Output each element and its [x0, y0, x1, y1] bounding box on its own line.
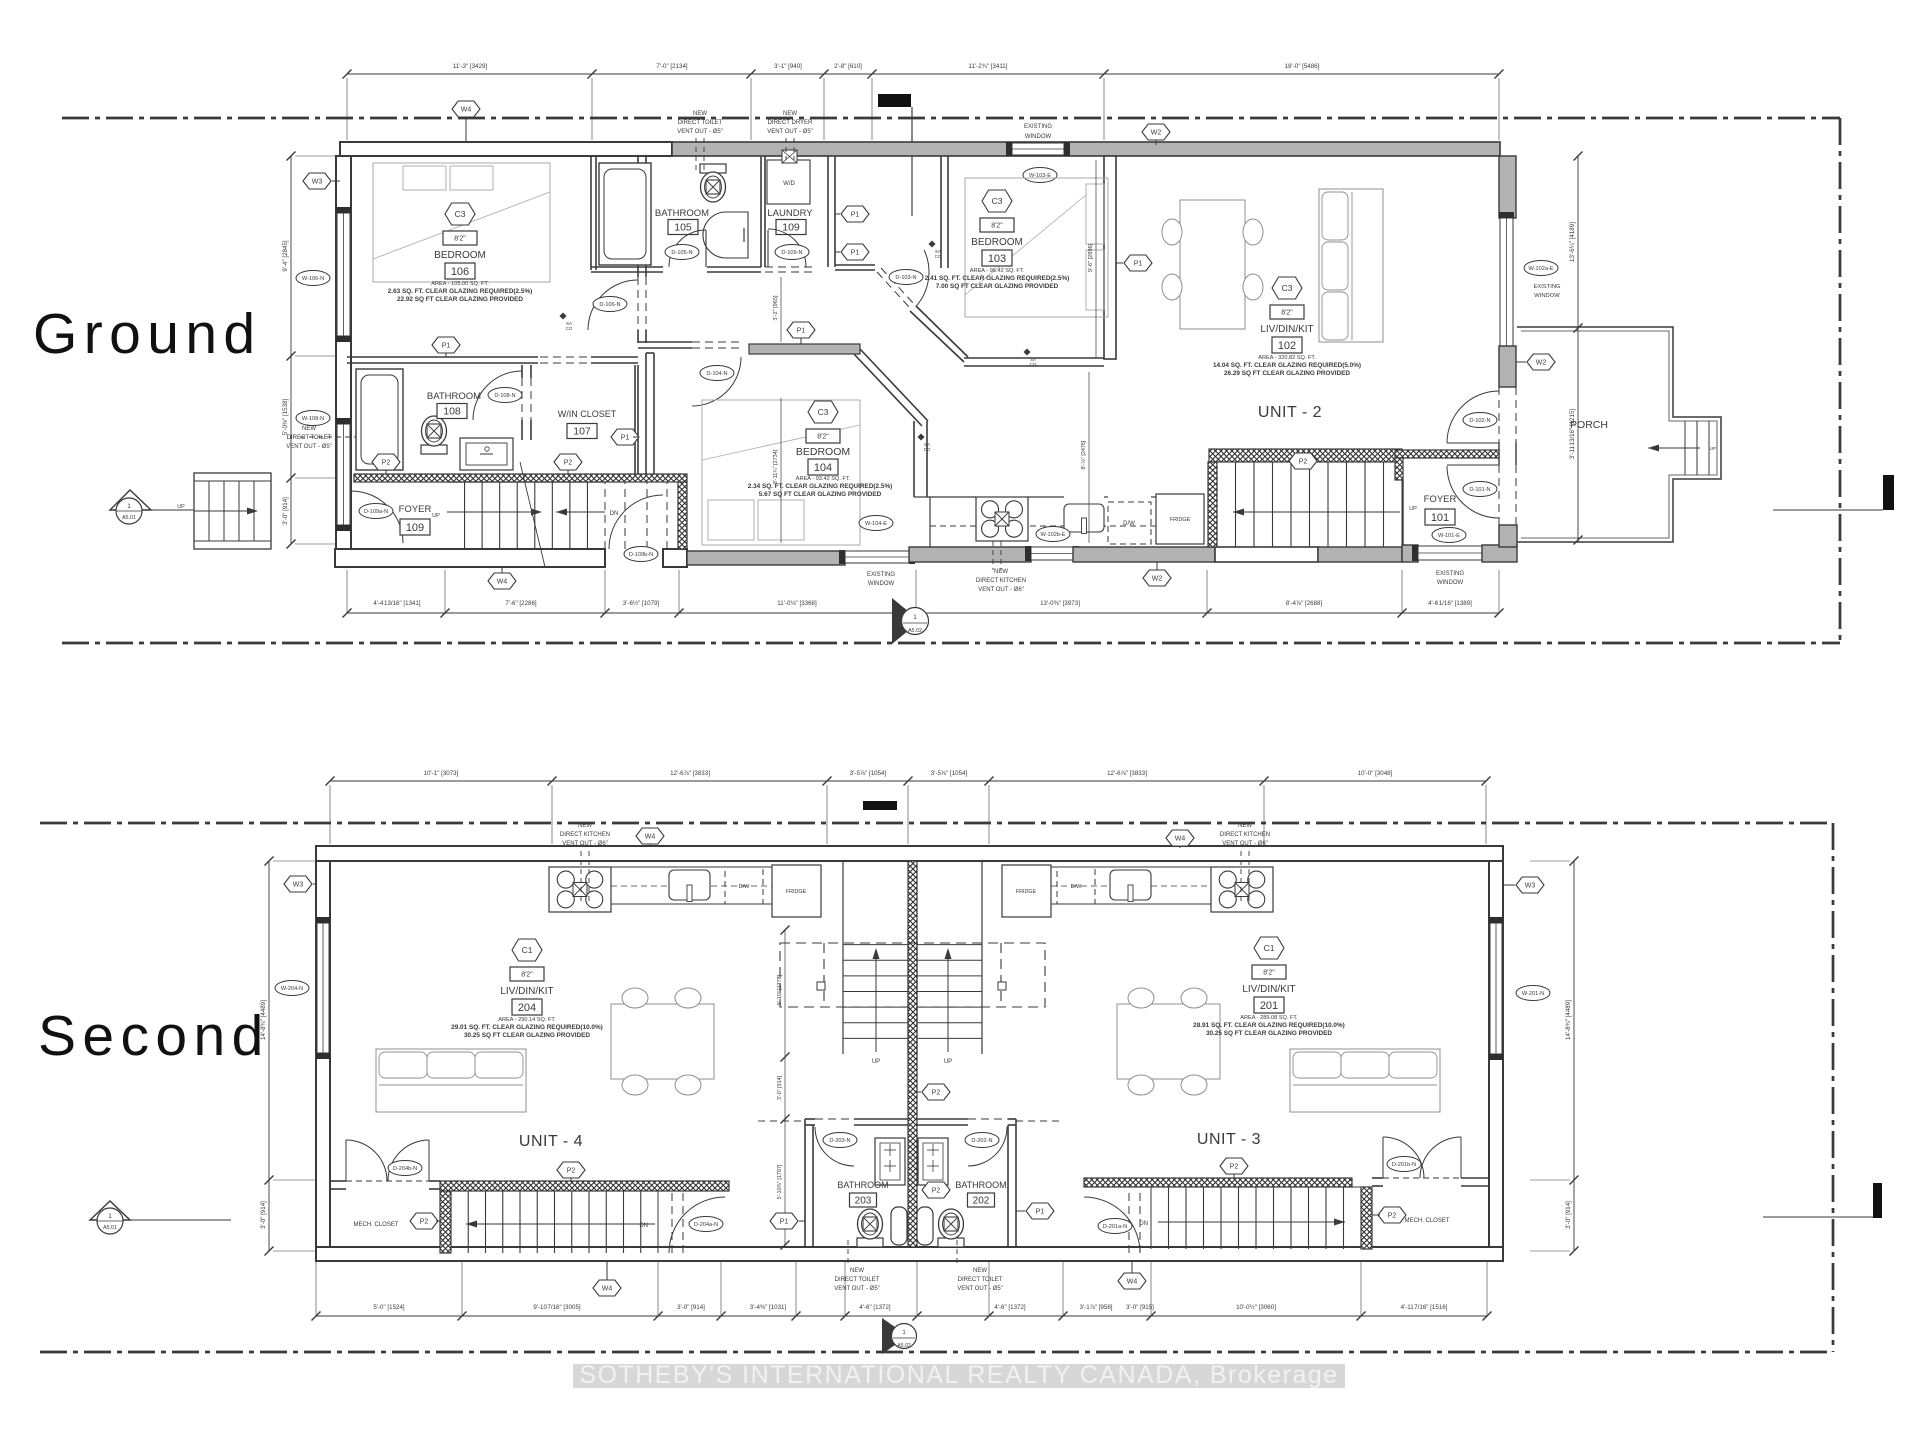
svg-text:BEDROOM: BEDROOM: [434, 250, 486, 261]
svg-text:W4: W4: [645, 834, 656, 841]
svg-text:7'-6" [2286]: 7'-6" [2286]: [505, 600, 537, 607]
svg-text:106: 106: [451, 266, 469, 278]
svg-text:P2: P2: [1388, 1213, 1397, 1220]
svg-text:BATHROOM: BATHROOM: [655, 208, 709, 219]
svg-text:8'2": 8'2": [1281, 309, 1293, 316]
svg-text:W4: W4: [461, 107, 472, 114]
svg-text:FRIDGE: FRIDGE: [786, 889, 807, 895]
svg-text:C3: C3: [1282, 283, 1293, 293]
svg-text:DIRECT TOILET: DIRECT TOILET: [835, 1277, 880, 1283]
svg-text:5.67 SQ FT CLEAR GLAZING: 5.67 SQ FT CLEAR GLAZING PROVIDED: [759, 491, 882, 498]
svg-text:202: 202: [973, 1196, 990, 1207]
svg-text:FOYER: FOYER: [1424, 494, 1457, 505]
svg-text:9'-4" [2845]: 9'-4" [2845]: [282, 240, 289, 272]
svg-text:UNIT - 3: UNIT - 3: [1197, 1131, 1261, 1148]
svg-text:W4: W4: [1127, 1279, 1138, 1286]
svg-text:FRIDGE: FRIDGE: [1170, 517, 1191, 523]
svg-text:11'-0⅛" [3368]: 11'-0⅛" [3368]: [777, 600, 817, 607]
svg-text:A5.02: A5.02: [908, 628, 922, 634]
svg-text:VENT OUT - Ø6": VENT OUT - Ø6": [562, 841, 608, 847]
svg-text:NEW: NEW: [850, 1268, 864, 1274]
svg-text:8'2": 8'2": [521, 971, 533, 978]
svg-text:BEDROOM: BEDROOM: [796, 446, 850, 458]
svg-text:3'-0" [914]: 3'-0" [914]: [677, 1304, 705, 1311]
svg-text:4'-4 13/16" [1341]: 4'-4 13/16" [1341]: [373, 600, 421, 607]
svg-text:18'-0" [5486]: 18'-0" [5486]: [1285, 63, 1320, 70]
svg-text:D/W: D/W: [739, 884, 751, 890]
svg-text:VENT OUT - Ø5": VENT OUT - Ø5": [957, 1286, 1003, 1292]
svg-text:D-202-N: D-202-N: [971, 1138, 992, 1144]
svg-text:EXISTING: EXISTING: [1533, 284, 1561, 290]
svg-text:D-204b-N: D-204b-N: [393, 1166, 417, 1172]
svg-text:2.63 SQ. FT. CLEAR GLAZING: 2.63 SQ. FT. CLEAR GLAZING REQUIRED(2.5%…: [388, 288, 533, 295]
svg-text:3'-0" [915]: 3'-0" [915]: [1126, 1304, 1154, 1311]
svg-text:D-204a-N: D-204a-N: [694, 1222, 718, 1228]
svg-text:DIRECT TOILET: DIRECT TOILET: [287, 435, 332, 441]
svg-text:D/W: D/W: [1071, 884, 1083, 890]
svg-text:DIRECT KITCHEN: DIRECT KITCHEN: [976, 578, 1026, 584]
svg-text:W/IN CLOSET: W/IN CLOSET: [558, 409, 617, 419]
svg-text:W4: W4: [602, 1286, 613, 1293]
svg-text:P2: P2: [1299, 459, 1308, 466]
svg-text:AREA - 105.00 SQ. FT.: AREA - 105.00 SQ. FT.: [431, 281, 489, 287]
svg-text:109: 109: [406, 522, 424, 534]
svg-text:3'-0" [914]: 3'-0" [914]: [777, 1075, 783, 1100]
svg-text:LAUNDRY: LAUNDRY: [767, 208, 813, 219]
svg-text:8'2": 8'2": [991, 222, 1003, 229]
svg-text:3'-6½" [1079]: 3'-6½" [1079]: [623, 600, 660, 607]
svg-text:3'-5⅞" [1054]: 3'-5⅞" [1054]: [931, 770, 968, 777]
svg-text:NEW: NEW: [783, 111, 797, 117]
svg-text:DN: DN: [1139, 1221, 1148, 1227]
svg-text:C3: C3: [992, 196, 1003, 206]
svg-text:8'-4⅞" [2688]: 8'-4⅞" [2688]: [1286, 600, 1323, 607]
svg-text:EXISTING: EXISTING: [867, 572, 895, 578]
svg-text:203: 203: [855, 1196, 872, 1207]
svg-text:D-203-N: D-203-N: [829, 1138, 850, 1144]
svg-text:VENT OUT - Ø5": VENT OUT - Ø5": [834, 1286, 880, 1292]
svg-text:22.92 SQ FT CLEAR GLAZING: 22.92 SQ FT CLEAR GLAZING PROVIDED: [397, 296, 523, 303]
svg-text:LIV/DIN/KIT: LIV/DIN/KIT: [1242, 984, 1295, 995]
svg-text:10'-0" [3048]: 10'-0" [3048]: [1358, 770, 1393, 777]
svg-text:P2: P2: [564, 460, 573, 467]
svg-text:UP: UP: [1409, 506, 1417, 512]
svg-text:DIRECT KITCHEN: DIRECT KITCHEN: [1220, 832, 1270, 838]
svg-text:4'-6" [1372]: 4'-6" [1372]: [994, 1304, 1026, 1311]
svg-text:8'2": 8'2": [1263, 969, 1275, 976]
svg-text:14'-8¾" [4489]: 14'-8¾" [4489]: [260, 1000, 267, 1040]
svg-text:BATHROOM: BATHROOM: [427, 391, 481, 402]
svg-text:W-102b-E: W-102b-E: [1040, 532, 1065, 538]
svg-text:28.91 SQ. FT. CLEAR GLAZIN: 28.91 SQ. FT. CLEAR GLAZING REQUIRED(10.…: [1193, 1022, 1345, 1029]
svg-text:UP: UP: [1710, 446, 1716, 451]
svg-text:Ground: Ground: [33, 302, 262, 366]
svg-text:30.25 SQ FT CLEAR GLAZING: 30.25 SQ FT CLEAR GLAZING PROVIDED: [1206, 1030, 1332, 1037]
svg-text:NEW: NEW: [302, 426, 316, 432]
svg-text:FOYER: FOYER: [399, 504, 432, 515]
svg-text:P2: P2: [567, 1168, 576, 1175]
svg-text:DIRECT TOILET: DIRECT TOILET: [958, 1277, 1003, 1283]
svg-text:3'-11 13/16" [1215]: 3'-11 13/16" [1215]: [1569, 409, 1576, 460]
svg-text:7'-0" [2134]: 7'-0" [2134]: [656, 63, 688, 70]
svg-text:14'-8¾" [4489]: 14'-8¾" [4489]: [1565, 1000, 1572, 1040]
svg-text:7.00 SQ FT CLEAR GLAZING: 7.00 SQ FT CLEAR GLAZING PROVIDED: [936, 283, 1059, 290]
svg-text:NEW: NEW: [578, 823, 592, 829]
svg-text:WINDOW: WINDOW: [1534, 293, 1560, 299]
svg-text:1: 1: [127, 503, 131, 510]
svg-text:MECH. CLOSET: MECH. CLOSET: [1404, 1218, 1449, 1224]
svg-text:BATHROOM: BATHROOM: [837, 1180, 888, 1190]
svg-text:VENT OUT - Ø6": VENT OUT - Ø6": [978, 587, 1024, 593]
svg-text:5'-0⅜" [1538]: 5'-0⅜" [1538]: [282, 399, 289, 436]
svg-text:13'-6¼" [4189]: 13'-6¼" [4189]: [1569, 222, 1576, 262]
svg-text:UP: UP: [432, 513, 440, 519]
svg-text:9'-6" [2896]: 9'-6" [2896]: [1088, 243, 1094, 272]
svg-text:LIV/DIN/KIT: LIV/DIN/KIT: [500, 986, 553, 997]
svg-text:D-101-N: D-101-N: [1469, 487, 1490, 493]
svg-text:3'-1⅞" [958]: 3'-1⅞" [958]: [1080, 1304, 1113, 1311]
svg-text:11'-3" [3429]: 11'-3" [3429]: [453, 63, 488, 70]
svg-text:P2: P2: [382, 460, 391, 467]
svg-text:W-204-N: W-204-N: [281, 986, 303, 992]
svg-text:W-108-N: W-108-N: [302, 416, 324, 422]
svg-text:5'-10⅜" [1797]: 5'-10⅜" [1797]: [777, 1164, 783, 1199]
svg-text:D-103-N: D-103-N: [895, 275, 916, 281]
svg-text:109: 109: [782, 222, 800, 234]
svg-text:D-102-N: D-102-N: [1469, 418, 1490, 424]
svg-text:WINDOW: WINDOW: [1025, 134, 1052, 140]
svg-text:VENT OUT - Ø6": VENT OUT - Ø6": [1222, 841, 1268, 847]
svg-text:8'2": 8'2": [454, 235, 466, 242]
svg-text:W-106-N: W-106-N: [302, 276, 324, 282]
svg-text:BEDROOM: BEDROOM: [971, 237, 1023, 248]
svg-text:104: 104: [814, 462, 832, 474]
svg-text:A5.01: A5.01: [122, 515, 136, 521]
svg-text:NEW: NEW: [693, 111, 707, 117]
svg-text:W/D: W/D: [783, 181, 795, 187]
svg-text:4'-6" [1372]: 4'-6" [1372]: [859, 1304, 891, 1311]
svg-text:UNIT - 4: UNIT - 4: [519, 1133, 583, 1150]
svg-text:PORCH: PORCH: [1570, 419, 1608, 431]
svg-text:P1: P1: [780, 1219, 789, 1226]
svg-text:W3: W3: [293, 882, 304, 889]
svg-text:VENT OUT - Ø5": VENT OUT - Ø5": [677, 129, 723, 135]
svg-text:P1: P1: [797, 328, 806, 335]
svg-text:DN: DN: [610, 511, 619, 517]
svg-text:P1: P1: [851, 250, 860, 257]
svg-text:LIV/DIN/KIT: LIV/DIN/KIT: [1260, 324, 1313, 335]
svg-text:P2: P2: [932, 1188, 941, 1195]
svg-text:UP: UP: [177, 504, 185, 510]
svg-text:UP: UP: [872, 1059, 880, 1065]
svg-text:D-201b-N: D-201b-N: [1392, 1162, 1416, 1168]
svg-text:CO: CO: [935, 254, 942, 259]
svg-text:C1: C1: [1264, 943, 1275, 953]
svg-text:3'-0" [914]: 3'-0" [914]: [260, 1201, 267, 1229]
svg-text:2.34 SQ. FT. CLEAR GLAZING: 2.34 SQ. FT. CLEAR GLAZING REQUIRED(2.5%…: [748, 483, 893, 490]
svg-text:AREA - 96.42 SQ. FT.: AREA - 96.42 SQ. FT.: [970, 268, 1025, 274]
svg-text:W2: W2: [1152, 576, 1163, 583]
svg-text:102: 102: [1278, 340, 1296, 352]
svg-text:P1: P1: [1036, 1209, 1045, 1216]
svg-text:8'-½" [2476]: 8'-½" [2476]: [1080, 440, 1087, 469]
svg-text:3'-0" [914]: 3'-0" [914]: [282, 497, 289, 525]
svg-text:W3: W3: [312, 179, 323, 186]
svg-text:W-104-E: W-104-E: [865, 521, 887, 527]
svg-text:FRIDGE: FRIDGE: [1016, 889, 1037, 895]
svg-text:NEW: NEW: [973, 1268, 987, 1274]
svg-text:10'-1" [3073]: 10'-1" [3073]: [424, 770, 459, 777]
svg-text:CO: CO: [924, 447, 931, 452]
svg-text:D-106-N: D-106-N: [599, 302, 620, 308]
svg-text:VENT OUT - Ø5": VENT OUT - Ø5": [286, 444, 332, 450]
svg-text:WINDOW: WINDOW: [1437, 580, 1464, 586]
svg-text:10'-0½" [3060]: 10'-0½" [3060]: [1236, 1304, 1276, 1311]
svg-text:DIRECT DRYER: DIRECT DRYER: [768, 120, 813, 126]
svg-text:NEW: NEW: [1238, 823, 1252, 829]
svg-text:14.04 SQ. FT. CLEAR GLAZIN: 14.04 SQ. FT. CLEAR GLAZING REQUIRED(5.0…: [1213, 362, 1361, 369]
svg-text:W2: W2: [1536, 360, 1547, 367]
svg-text:11'-2¾" [3411]: 11'-2¾" [3411]: [969, 63, 1008, 70]
svg-text:12'-6⅞" [3833]: 12'-6⅞" [3833]: [1107, 770, 1147, 777]
svg-text:W4: W4: [1175, 836, 1186, 843]
svg-text:BATHROOM: BATHROOM: [955, 1180, 1006, 1190]
svg-text:P2: P2: [420, 1219, 429, 1226]
svg-text:101: 101: [1431, 512, 1449, 524]
svg-text:DN: DN: [639, 1223, 648, 1229]
svg-text:P1: P1: [621, 435, 630, 442]
svg-text:4'-6 1/16" [1389]: 4'-6 1/16" [1389]: [1428, 600, 1472, 607]
svg-text:8'2": 8'2": [817, 433, 829, 440]
svg-text:D-109-N: D-109-N: [781, 250, 802, 256]
svg-text:3'-4⅜" [1031]: 3'-4⅜" [1031]: [750, 1304, 787, 1311]
svg-text:WINDOW: WINDOW: [868, 581, 895, 587]
svg-text:P1: P1: [1134, 261, 1143, 268]
svg-text:D-108-N: D-108-N: [494, 393, 515, 399]
svg-text:12'-6⅞" [3833]: 12'-6⅞" [3833]: [670, 770, 710, 777]
svg-text:107: 107: [573, 426, 591, 438]
svg-text:P2: P2: [1230, 1164, 1239, 1171]
svg-text:EXISTING: EXISTING: [1436, 571, 1464, 577]
svg-text:W-102a-E: W-102a-E: [1528, 266, 1553, 272]
svg-text:Second: Second: [38, 1004, 270, 1068]
svg-text:3'-0" [914]: 3'-0" [914]: [1565, 1201, 1572, 1229]
svg-text:C1: C1: [522, 945, 533, 955]
svg-text:VENT OUT - Ø5": VENT OUT - Ø5": [767, 129, 813, 135]
svg-text:D-109a-N: D-109a-N: [364, 509, 388, 515]
svg-text:3'-1" [940]: 3'-1" [940]: [774, 63, 802, 70]
svg-text:8'-11¾" [2734]: 8'-11¾" [2734]: [773, 449, 779, 484]
svg-text:D-109b-N: D-109b-N: [629, 552, 653, 558]
svg-text:CO: CO: [566, 326, 573, 331]
svg-text:CO: CO: [1030, 362, 1037, 367]
svg-text:W-101-E: W-101-E: [1438, 533, 1460, 539]
svg-text:A5.02: A5.02: [897, 1343, 911, 1349]
svg-text:D-104-N: D-104-N: [706, 371, 727, 377]
svg-text:P1: P1: [851, 212, 860, 219]
svg-text:4'-11 7/16" [1516]: 4'-11 7/16" [1516]: [1401, 1304, 1448, 1311]
svg-text:29.01 SQ. FT. CLEAR GLAZIN: 29.01 SQ. FT. CLEAR GLAZING REQUIRED(10.…: [451, 1024, 603, 1031]
svg-text:204: 204: [518, 1002, 536, 1014]
svg-text:2'-8" [610]: 2'-8" [610]: [834, 63, 862, 70]
svg-text:26.29 SQ FT CLEAR GLAZING: 26.29 SQ FT CLEAR GLAZING PROVIDED: [1224, 370, 1350, 377]
svg-text:3'-5⅞" [1054]: 3'-5⅞" [1054]: [850, 770, 887, 777]
svg-text:W2: W2: [1151, 130, 1162, 137]
svg-text:D-105-N: D-105-N: [671, 250, 692, 256]
svg-text:AREA - 93.42 SQ. FT.: AREA - 93.42 SQ. FT.: [796, 476, 851, 482]
svg-text:EXISTING: EXISTING: [1024, 124, 1052, 130]
svg-text:30.25 SQ FT CLEAR GLAZING: 30.25 SQ FT CLEAR GLAZING PROVIDED: [464, 1032, 590, 1039]
svg-text:108: 108: [443, 406, 461, 418]
svg-text:103: 103: [988, 253, 1006, 265]
svg-text:AREA - 289.08 SQ. FT.: AREA - 289.08 SQ. FT.: [1240, 1015, 1298, 1021]
svg-text:C3: C3: [455, 209, 466, 219]
svg-text:D/W: D/W: [1123, 521, 1135, 527]
svg-text:P2: P2: [932, 1090, 941, 1097]
svg-text:5'-0" [1524]: 5'-0" [1524]: [373, 1304, 405, 1311]
svg-text:UP: UP: [944, 1059, 952, 1065]
svg-text:P1: P1: [442, 343, 451, 350]
svg-text:SOTHEBY'S INTERNATIONAL REALTY: SOTHEBY'S INTERNATIONAL REALTY CANADA, B…: [579, 1361, 1338, 1389]
svg-text:AREA - 290.14 SQ. FT.: AREA - 290.14 SQ. FT.: [498, 1017, 556, 1023]
svg-text:MECH. CLOSET: MECH. CLOSET: [353, 1222, 398, 1228]
svg-text:D-201a-N: D-201a-N: [1103, 1224, 1127, 1230]
svg-text:W3: W3: [1525, 883, 1536, 890]
svg-text:W4: W4: [497, 579, 508, 586]
svg-text:2.41 SQ. FT. CLEAR GLAZING: 2.41 SQ. FT. CLEAR GLAZING REQUIRED(2.5%…: [925, 275, 1070, 282]
svg-text:W-201-N: W-201-N: [1522, 991, 1544, 997]
svg-text:AREA - 320.82 SQ. FT.: AREA - 320.82 SQ. FT.: [1258, 355, 1316, 361]
svg-text:DIRECT TOILET: DIRECT TOILET: [678, 120, 723, 126]
svg-text:3'-2" [965]: 3'-2" [965]: [773, 295, 779, 321]
svg-text:105: 105: [674, 222, 692, 234]
svg-text:DIRECT KITCHEN: DIRECT KITCHEN: [560, 832, 610, 838]
svg-text:13'-0⅜" [3973]: 13'-0⅜" [3973]: [1040, 600, 1080, 607]
svg-text:9'-10 7/16" [3005]: 9'-10 7/16" [3005]: [533, 1304, 581, 1311]
svg-text:1: 1: [108, 1213, 112, 1220]
svg-text:C3: C3: [818, 407, 829, 417]
svg-text:201: 201: [1260, 1000, 1278, 1012]
svg-text:A5.01: A5.01: [103, 1225, 117, 1231]
svg-text:UNIT - 2: UNIT - 2: [1258, 404, 1322, 421]
